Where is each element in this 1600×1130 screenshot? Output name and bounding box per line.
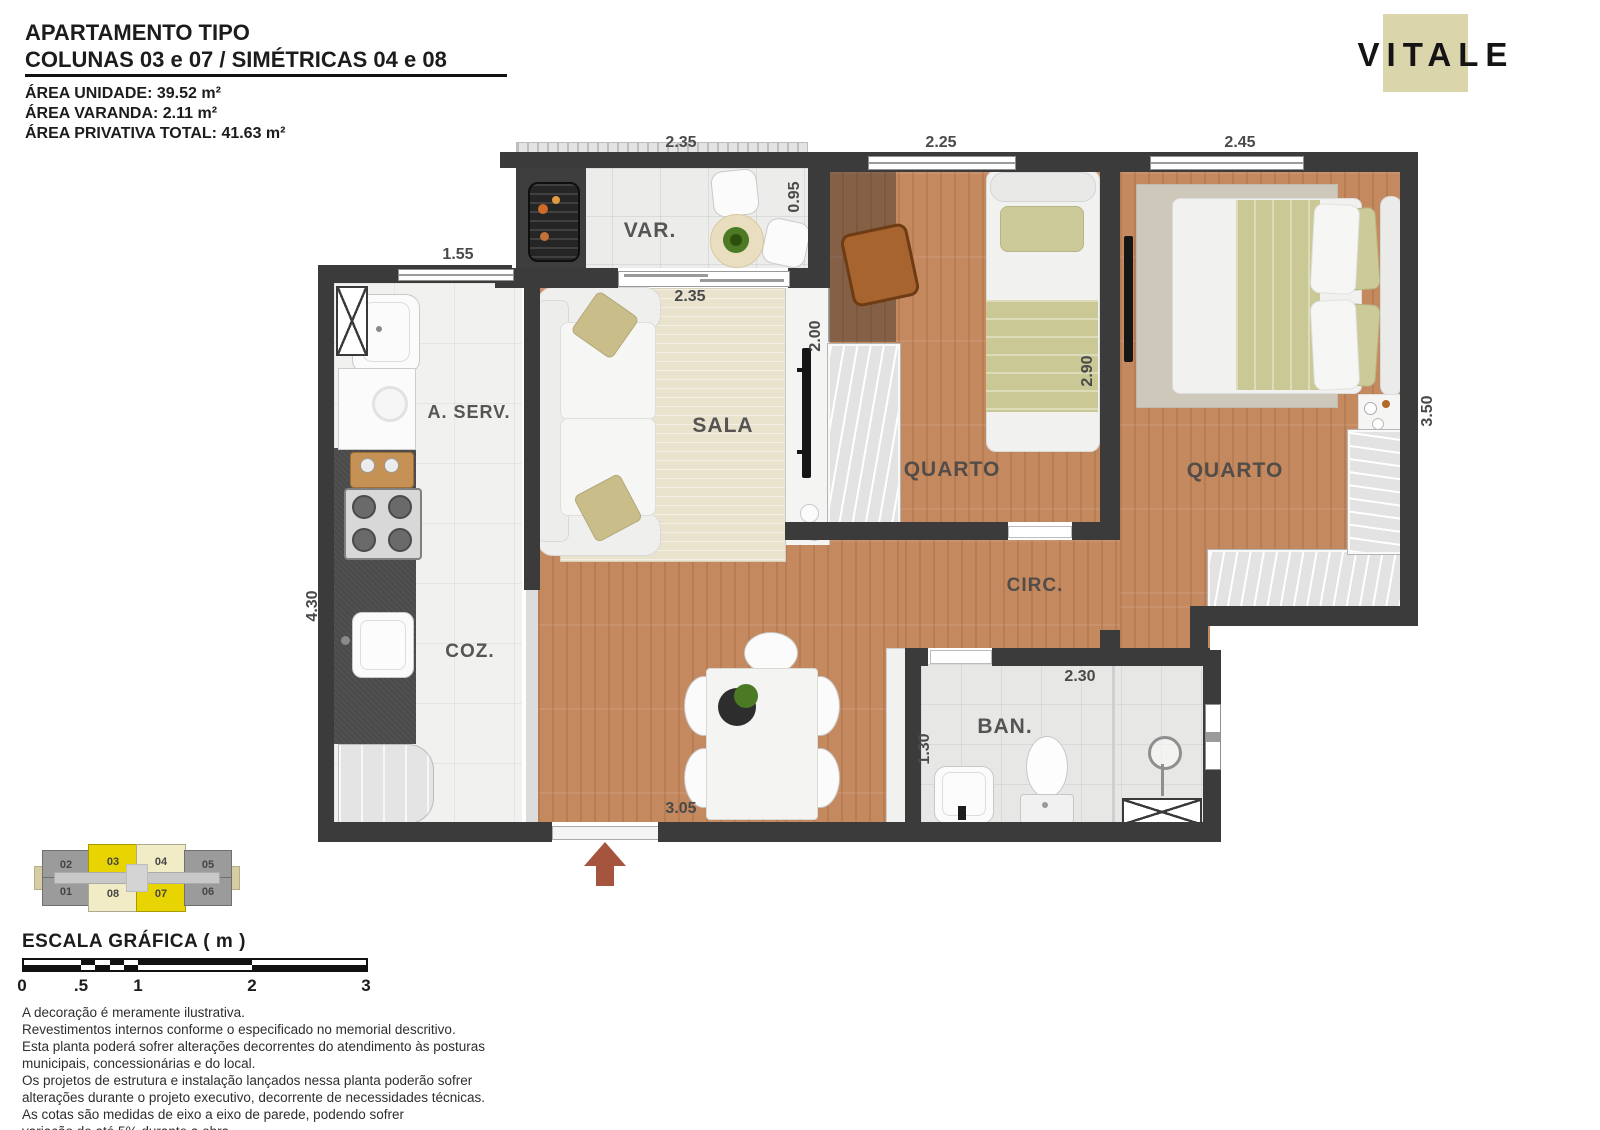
disclaimer-line: Os projetos de estrutura e instalação la… [22,1072,472,1089]
dim-quarto1-depth: 2.90 [1079,349,1097,393]
threshold [526,590,538,822]
blanket [1236,200,1320,390]
grill-food [538,204,548,214]
cutting-board [350,452,414,488]
label-circulacao: CIRC. [985,575,1085,597]
dim-quarto2-width: 2.45 [1205,134,1275,152]
key-unit-label: 02 [60,859,72,871]
pillow [1310,299,1361,391]
stool [800,504,819,523]
key-unit-label: 06 [202,886,214,898]
disclaimer-line: Revestimentos internos conforme o especi… [22,1021,456,1038]
burner [352,528,376,552]
dim-varanda-depth: 0.95 [786,175,804,219]
scale-seg [138,960,252,965]
wall [524,283,540,590]
fridge [338,744,434,824]
wall [658,822,1220,842]
entry-arrow-head [584,842,626,866]
wall [318,822,552,842]
disclaimer-line: Esta planta poderá sofrer alterações dec… [22,1038,485,1055]
wall [318,265,334,842]
scale-seg [95,965,110,970]
grill-food [540,232,549,241]
dim-entrada-width: 3.05 [646,800,716,818]
sliding-door-rail [624,274,708,277]
label-quarto1: QUARTO [892,458,1012,482]
dim-cozinha-window: 1.55 [423,246,493,264]
pillow [1310,203,1361,295]
label-sala: SALA [663,414,783,438]
burner [388,528,412,552]
disclaimer-line: alterações durante o projeto executivo, … [22,1089,485,1106]
wall [1100,152,1120,540]
burner [352,495,376,519]
disclaimer-line: variação de até 5% durante a obra [22,1123,229,1130]
wall [500,152,812,168]
dim-quarto2-depth: 3.50 [1419,389,1437,433]
flush-button [1042,802,1048,808]
scale-tick-3: 3 [358,976,374,996]
laundry-tank-basin [362,302,410,362]
entry-sill [552,826,660,840]
disclaimer-line: municipais, concessionárias e do local. [22,1055,255,1072]
key-unit-label: 08 [107,888,119,900]
scale-seg [24,965,81,970]
dim-quarto1-width: 2.25 [906,134,976,152]
headboard [1380,196,1402,396]
board-knob [360,458,375,473]
key-unit-label: 01 [60,886,72,898]
varanda-chair [710,168,761,219]
tv-quarto2 [1124,236,1133,362]
key-unit-label: 04 [155,856,167,868]
label-quarto2: QUARTO [1175,459,1295,483]
burner [388,495,412,519]
key-unit-label: 03 [107,856,119,868]
scale-tick-0: 0 [15,976,29,996]
lamp [1364,402,1377,415]
wall [1190,606,1418,626]
faucet [341,636,350,645]
bed-roll [990,172,1096,202]
dining-table [706,668,818,820]
toilet-bowl [1026,736,1068,798]
wall [1072,522,1120,540]
wall [1190,606,1208,666]
door-leaf-banheiro [930,650,992,664]
scale-seg [252,965,366,970]
area-unidade: ÁREA UNIDADE: 39.52 m² [25,85,221,103]
dim-cozinha-depth: 4.30 [304,584,322,628]
scale-tick-05: .5 [71,976,91,996]
key-plan-core [126,864,148,892]
disclaimer-line: As cotas são medidas de eixo a eixo de p… [22,1106,404,1123]
decor-dot [1382,400,1390,408]
label-banheiro: BAN. [955,715,1055,739]
label-area-servico: A. SERV. [404,402,534,423]
shower-stem [1161,764,1164,796]
grill-food [552,196,560,204]
area-privativa: ÁREA PRIVATIVA TOTAL: 41.63 m² [25,125,285,143]
key-unit-label: 05 [202,859,214,871]
scale-tick-2: 2 [244,976,260,996]
sliding-door-rail [700,279,784,282]
shower-glass [1112,664,1115,822]
wall [788,268,830,288]
dim-sala-width: 2.35 [655,288,725,306]
area-varanda: ÁREA VARANDA: 2.11 m² [25,105,217,123]
sink-basin [360,620,406,670]
faucet [958,806,966,820]
scale-bar [22,958,368,972]
door-leaf-quarto1 [1008,526,1072,538]
window-aserv [398,269,514,281]
dim-banheiro-depth: 1.30 [916,727,934,771]
brand-logo: VITALE [1336,36,1536,74]
key-unit-label: 07 [155,888,167,900]
label-cozinha: COZ. [420,641,520,663]
grill [528,182,580,262]
entry-arrow-stem [596,866,614,886]
wall [1100,630,1120,666]
drain [376,326,382,332]
dim-banheiro-width: 2.30 [1045,668,1115,686]
title-underline [25,74,507,77]
closet-quarto2-v [1348,430,1404,554]
window-quarto2 [1150,156,1304,170]
window-banheiro [1205,704,1221,770]
dim-varanda-width: 2.35 [646,134,716,152]
dim-sala-tv-wall: 2.00 [807,314,825,358]
scale-title: ESCALA GRÁFICA ( m ) [22,931,246,953]
disclaimer-line: A decoração é meramente ilustrativa. [22,1004,245,1021]
window-quarto1 [868,156,1016,170]
key-plan: 02 03 04 05 01 08 07 06 [40,842,236,912]
decor-ring [1372,418,1384,430]
washer-door [372,386,408,422]
vent-shaft [336,286,368,356]
floor-plan-page: APARTAMENTO TIPO COLUNAS 03 e 07 / SIMÉT… [0,0,1600,1130]
pillow [1000,206,1084,252]
closet-quarto2-h [1208,550,1404,610]
page-title-line1: APARTAMENTO TIPO [25,20,250,46]
table-plant [734,684,758,708]
label-varanda: VAR. [600,219,700,243]
page-title-line2: COLUNAS 03 e 07 / SIMÉTRICAS 04 e 08 [25,47,447,73]
tv-sala [802,348,811,478]
toilet-tank [1020,794,1074,824]
closet-quarto1 [828,344,900,530]
scale-seg [124,965,138,970]
shower-head [1148,736,1182,770]
wall [1400,152,1418,626]
wall [785,522,1008,540]
scale-seg [81,960,95,965]
board-knob [384,458,399,473]
plant-center [730,234,742,246]
ban-door-panel [886,648,907,824]
scale-tick-1: 1 [130,976,146,996]
scale-seg [110,960,124,965]
